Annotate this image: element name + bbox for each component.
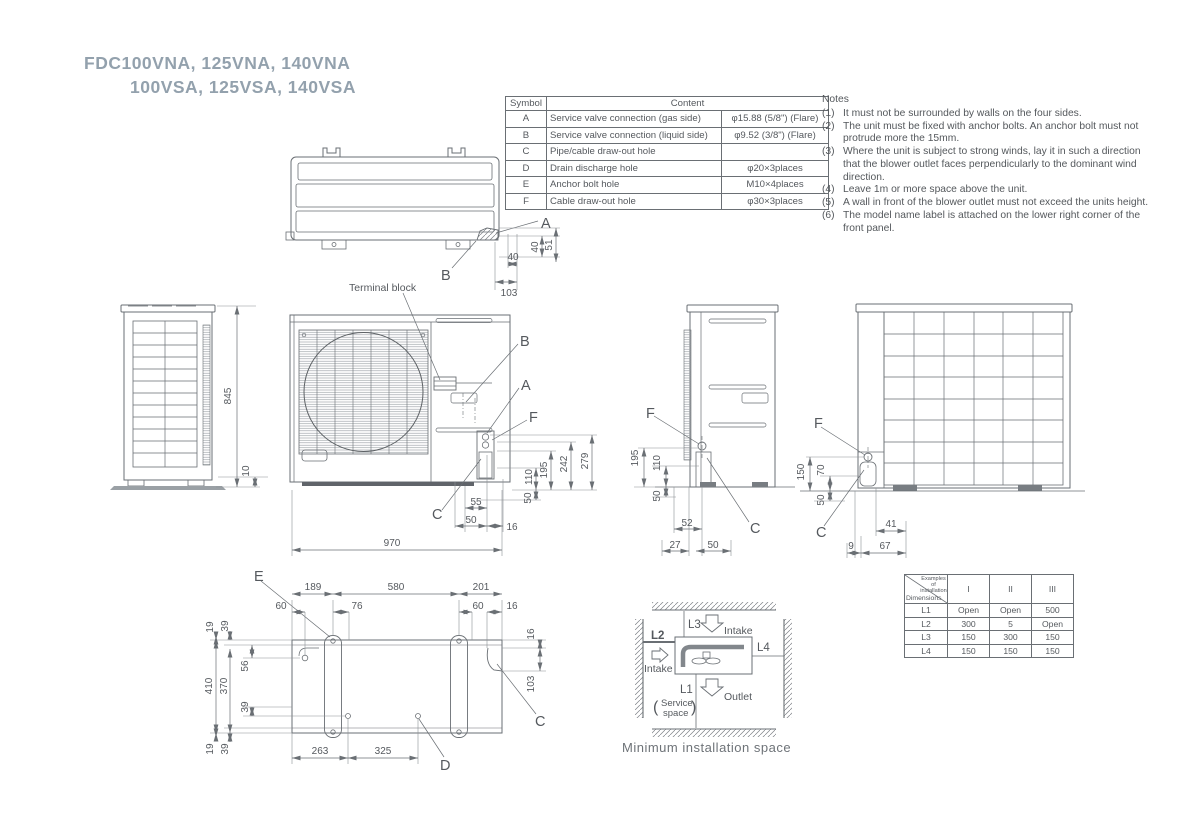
foot <box>752 482 768 487</box>
slot <box>709 423 766 427</box>
dim-label: 40 <box>507 252 519 263</box>
dim-label: 39 <box>220 743 231 755</box>
foot <box>446 240 470 249</box>
fin-coil <box>203 325 210 465</box>
dim-label: 103 <box>501 288 518 299</box>
corner-arc <box>299 648 319 656</box>
top-panel <box>296 211 494 232</box>
slot <box>742 393 768 403</box>
fin-coil <box>684 330 691 460</box>
dim-label: 16 <box>506 522 518 533</box>
leaders <box>261 581 536 757</box>
value-cell: 300 <box>990 631 1032 645</box>
callout-c: C <box>432 507 442 523</box>
value-cell: 150 <box>948 644 990 658</box>
l2-label: L2 <box>651 630 664 642</box>
dim-label: 50 <box>707 540 719 551</box>
dim-label: 16 <box>506 601 518 612</box>
table-row: L4 150 150 150 <box>905 644 1074 658</box>
dim-label: 580 <box>388 582 405 593</box>
l4-label: L4 <box>757 642 770 654</box>
l3-label: L3 <box>688 619 701 631</box>
dim-label: 410 <box>204 677 215 694</box>
anchor-slot <box>457 639 461 643</box>
back-view <box>800 304 1085 558</box>
dim-label: 50 <box>652 490 663 502</box>
table-row: L2 300 5 Open <box>905 617 1074 631</box>
callout-a: A <box>541 216 551 232</box>
foot <box>1018 485 1042 491</box>
callout-f: F <box>646 406 655 422</box>
pipe-cover <box>479 452 492 478</box>
drain-hole <box>416 714 421 719</box>
wall-hatch-right <box>784 619 792 718</box>
mount-tab <box>323 148 340 157</box>
column-header: II <box>990 575 1032 604</box>
table-row: L3 150 300 150 <box>905 631 1074 645</box>
leader-a <box>496 221 538 233</box>
value-cell: 150 <box>948 631 990 645</box>
value-cell: Open <box>1032 617 1074 631</box>
mounting-rail <box>325 636 342 738</box>
service-valve-liquid <box>482 442 488 448</box>
foot <box>700 482 716 487</box>
bolt-hole <box>302 655 308 661</box>
value-cell: 5 <box>990 617 1032 631</box>
row-label: L3 <box>905 631 948 645</box>
row-label: L4 <box>905 644 948 658</box>
top-panel <box>296 184 494 207</box>
dim-label: 19 <box>205 743 216 755</box>
base-plate <box>110 486 226 490</box>
dim-label: 56 <box>240 660 251 672</box>
dim-label: 325 <box>375 746 392 757</box>
foot <box>128 480 144 486</box>
foot <box>188 480 204 486</box>
column-header: I <box>948 575 990 604</box>
dim-label: 41 <box>885 519 897 530</box>
dim-label: 19 <box>205 621 216 633</box>
callout-f: F <box>814 416 823 432</box>
callout-e: E <box>254 569 264 585</box>
dim-label: 60 <box>275 601 287 612</box>
unit-plan <box>675 637 752 674</box>
dim-label: 9 <box>848 541 854 552</box>
intake-arrow-left <box>652 648 668 662</box>
dim-label: 27 <box>669 540 681 551</box>
dim-label: 195 <box>630 449 641 466</box>
dim-label: 70 <box>816 464 827 476</box>
dim-label: 150 <box>796 463 807 480</box>
top-view <box>286 148 560 290</box>
service-valve-gas <box>482 434 488 440</box>
dim-label: 370 <box>219 677 230 694</box>
fan-motor <box>703 652 710 658</box>
service-space-label-2: space <box>663 708 688 719</box>
corner-top-label: Examples of installation <box>920 576 947 594</box>
callout-d: D <box>440 758 450 774</box>
value-cell: Open <box>948 604 990 618</box>
intake-label-top: Intake <box>724 625 753 637</box>
mount-tab <box>448 148 465 157</box>
intake-arrow-top <box>701 615 723 632</box>
dim-label: 39 <box>220 620 231 632</box>
anchor-slot <box>331 639 335 643</box>
back-outline <box>858 312 1070 488</box>
anchor-slot <box>331 730 335 734</box>
dim-label: 50 <box>465 515 477 526</box>
dim-label: 60 <box>472 601 484 612</box>
mounting-rail <box>451 636 468 738</box>
dim-label: 195 <box>539 461 550 478</box>
left-side-view <box>110 305 268 490</box>
callout-b: B <box>520 334 530 350</box>
slot <box>709 319 766 323</box>
extension-lines <box>210 600 546 764</box>
bolt-hole <box>332 243 336 247</box>
row-label: L1 <box>905 604 948 618</box>
bottom-view <box>210 581 546 764</box>
coil-guard-frame <box>884 312 1063 485</box>
dim-label: 55 <box>470 497 482 508</box>
fan-grille <box>299 330 428 454</box>
top-cap <box>856 304 1072 312</box>
valve-bracket <box>477 431 494 479</box>
l1-label: L1 <box>680 684 693 696</box>
dim-label: 189 <box>305 582 322 593</box>
dim-label: 103 <box>526 675 537 692</box>
dim-label: 279 <box>580 452 591 469</box>
foot <box>322 240 346 249</box>
service-paren-close: ) <box>691 699 696 716</box>
wall-hatch-left <box>635 619 643 718</box>
terminal-block <box>434 377 456 390</box>
bolt-hole <box>456 243 460 247</box>
wall-hatch-top <box>652 602 776 610</box>
value-cell: 150 <box>1032 631 1074 645</box>
terminal-block-label: Terminal block <box>349 282 417 294</box>
callout-c: C <box>750 521 760 537</box>
dim-label: 110 <box>524 469 535 485</box>
valve-centerlines <box>463 393 475 423</box>
base-rail <box>302 482 474 486</box>
valve-corner-cut <box>477 228 498 240</box>
leader-b <box>452 241 476 268</box>
value-cell: 150 <box>1032 644 1074 658</box>
dim-label: 16 <box>526 628 537 640</box>
min-space-caption: Minimum installation space <box>622 740 812 755</box>
callout-f: F <box>529 410 538 426</box>
right-side-view <box>634 305 795 556</box>
dim-label: 51 <box>544 239 555 251</box>
front-view <box>290 293 597 556</box>
dim-label: 52 <box>681 518 693 529</box>
dim-label: 110 <box>652 455 663 471</box>
dim-label: 242 <box>559 455 570 472</box>
callout-c: C <box>535 714 545 730</box>
service-paren-open: ( <box>653 699 659 716</box>
technical-drawing: A B 40 103 40 51 845 10 <box>0 0 1200 826</box>
dim-label: 40 <box>530 241 541 253</box>
dim-label: 50 <box>523 492 534 504</box>
pipe-cover <box>696 452 711 487</box>
row-label: L2 <box>905 617 948 631</box>
value-cell: Open <box>990 604 1032 618</box>
dim-label: 50 <box>816 494 827 506</box>
column-header: III <box>1032 575 1074 604</box>
table-row: L1 Open Open 500 <box>905 604 1074 618</box>
bottom-outline <box>292 640 502 733</box>
slot <box>709 385 766 389</box>
drawing-sheet: FDC100VNA, 125VNA, 140VNA 100VSA, 125VSA… <box>0 0 1200 826</box>
dim-label: 10 <box>241 465 252 477</box>
value-cell: 500 <box>1032 604 1074 618</box>
outlet-arrow <box>701 679 723 696</box>
dim-label: 263 <box>312 746 329 757</box>
side-outline <box>124 312 212 480</box>
leaders <box>654 416 749 522</box>
dim-label: 39 <box>240 701 251 713</box>
unit-top-outline <box>291 157 499 240</box>
value-cell: 300 <box>948 617 990 631</box>
dim-label: 970 <box>384 538 401 549</box>
louver-grid <box>133 321 197 467</box>
corner-bottom-label: Dimensions <box>906 595 942 602</box>
value-cell: 150 <box>990 644 1032 658</box>
intake-label-left: Intake <box>644 663 673 675</box>
drain-hole <box>346 714 351 719</box>
outlet-label: Outlet <box>724 691 752 703</box>
side-outline <box>690 312 775 487</box>
top-panel <box>298 163 492 180</box>
foot <box>893 485 917 491</box>
install-dimensions-table: Examples of installation Dimensions I II… <box>904 574 1074 658</box>
callout-b: B <box>441 268 451 284</box>
fan-blade <box>692 658 706 664</box>
coil-guard-grid <box>884 312 1063 485</box>
wall-hatch-bottom <box>652 729 776 737</box>
anchor-slot <box>457 730 461 734</box>
dim-label: 76 <box>351 601 363 612</box>
top-cap <box>687 305 778 312</box>
terminal-lines <box>434 381 492 386</box>
extension-lines <box>495 228 560 290</box>
dim-label: 845 <box>223 387 234 404</box>
corner-cell: Examples of installation Dimensions <box>905 575 948 604</box>
callout-c: C <box>816 525 826 541</box>
fan-blade <box>706 658 720 664</box>
dim-label: 201 <box>473 582 490 593</box>
table-row: Examples of installation Dimensions I II… <box>905 575 1074 604</box>
callout-a: A <box>521 378 531 394</box>
edge-inner-lines <box>292 645 502 728</box>
dim-label: 67 <box>879 541 891 552</box>
